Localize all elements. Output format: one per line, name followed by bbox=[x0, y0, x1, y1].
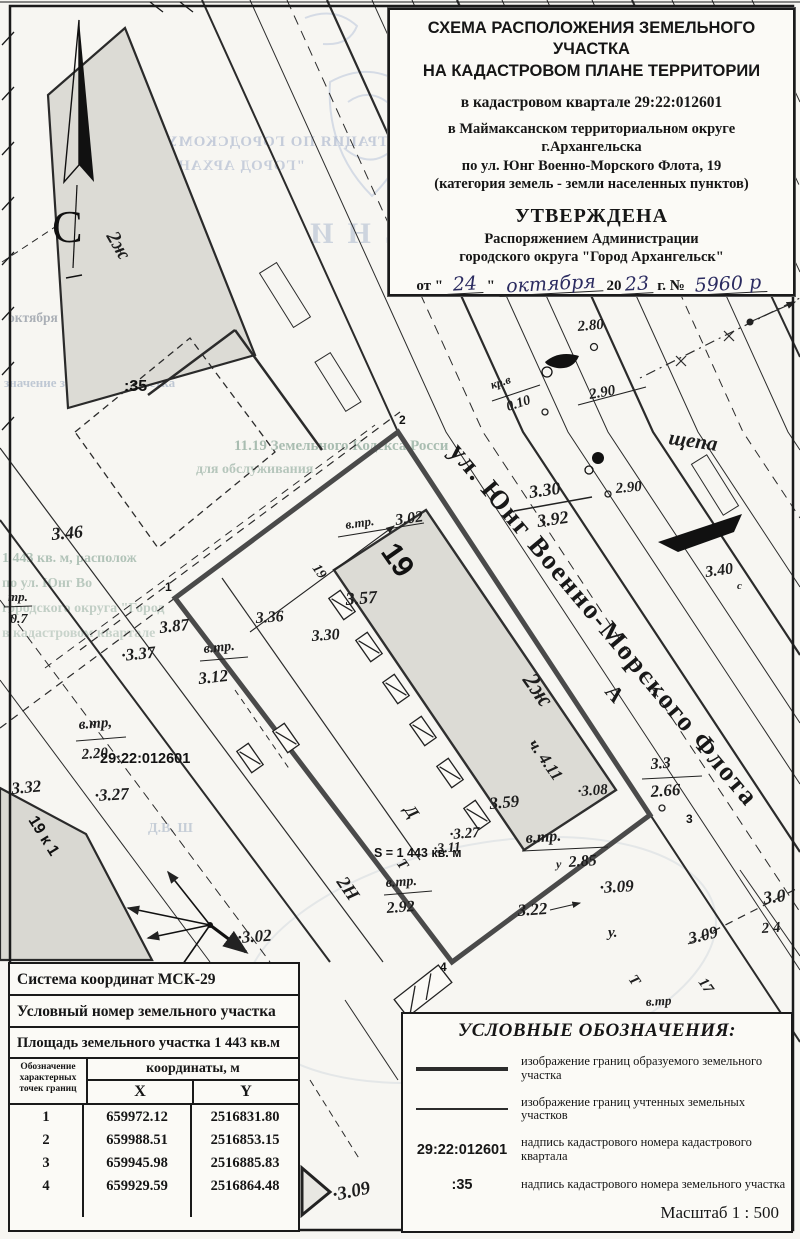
title-block: СХЕМА РАСПОЛОЖЕНИЯ ЗЕМЕЛЬНОГО УЧАСТКА НА… bbox=[388, 8, 795, 296]
map-label: 3.30 bbox=[527, 478, 562, 502]
map-label: в.тр. bbox=[525, 828, 562, 847]
map-label: С bbox=[52, 201, 83, 252]
map-label: 1 bbox=[165, 580, 172, 594]
area-row: Площадь земельного участка 1 443 кв.м bbox=[10, 1028, 298, 1059]
legend-item-formed-parcel: изображение границ образуемого земельног… bbox=[403, 1055, 791, 1083]
handwritten-day: 24 bbox=[446, 275, 483, 295]
map-label: 3.09 bbox=[685, 922, 720, 948]
thick-line-sample bbox=[416, 1067, 508, 1071]
approved-by: Распоряжением Администрации городского о… bbox=[390, 230, 793, 266]
handwritten-year: 23 bbox=[621, 275, 654, 295]
table-header: Обозначение характерных точек границ коо… bbox=[10, 1059, 298, 1105]
map-label: в.тр. bbox=[203, 639, 236, 657]
map-label: у. bbox=[606, 925, 617, 941]
legend-title: УСЛОВНЫЕ ОБОЗНАЧЕНИЯ: bbox=[403, 1020, 791, 1042]
map-label: ·3.27 bbox=[94, 784, 130, 805]
map-label: 2.66 bbox=[649, 780, 681, 801]
map-label: 3.30 bbox=[310, 626, 340, 645]
bleedthrough-text: 1 443 кв. м, располож bbox=[2, 551, 138, 566]
map-label: 3.0 bbox=[761, 885, 787, 908]
map-label: в.тр, bbox=[78, 715, 112, 733]
legend-item-registered-parcels: изображение границ учтенных земельных уч… bbox=[403, 1096, 791, 1124]
map-label: ·3.02 bbox=[237, 926, 273, 947]
map-label: 3.36 bbox=[254, 608, 284, 627]
map-label: 3.92 bbox=[535, 507, 570, 531]
map-label: 2 bbox=[399, 413, 406, 427]
map-label: 3.40 bbox=[703, 560, 734, 581]
handwritten-doc-number: 5960 р bbox=[688, 274, 767, 296]
map-label: Т bbox=[625, 972, 644, 989]
map-label: щепа bbox=[667, 425, 719, 456]
map-label: 19 bbox=[309, 562, 329, 582]
map-label: 3.57 bbox=[344, 587, 379, 609]
bleedthrough-text: для обслуживания bbox=[196, 462, 314, 477]
building-19k1 bbox=[0, 788, 152, 960]
map-label: 4 bbox=[440, 960, 447, 974]
map-label: 3.32 bbox=[10, 776, 43, 798]
thin-line-sample bbox=[416, 1108, 508, 1110]
building-19 bbox=[334, 510, 616, 850]
map-label: ·3.09 bbox=[599, 876, 634, 897]
map-label: 17 bbox=[695, 975, 717, 997]
map-label: в.тр bbox=[645, 993, 672, 1009]
map-label: 2.20 bbox=[80, 745, 109, 763]
y-values: 2516831.802516853.15 2516885.832516864.4… bbox=[192, 1105, 298, 1217]
map-label: с bbox=[737, 580, 742, 592]
map-label: ·3.37 bbox=[120, 642, 157, 665]
map-label: 3.3 bbox=[649, 755, 671, 773]
point-numbers: 12 34 bbox=[10, 1105, 84, 1217]
scheme-title: СХЕМА РАСПОЛОЖЕНИЯ ЗЕМЕЛЬНОГО УЧАСТКА НА… bbox=[390, 18, 793, 82]
map-label: 2 4 bbox=[760, 920, 781, 937]
legend-item-quarter-number: 29:22:012601 надпись кадастрового номера… bbox=[403, 1136, 791, 1164]
map-label: 2.92 bbox=[385, 898, 415, 917]
map-label: 2.80 bbox=[576, 317, 605, 335]
handwritten-month: октября bbox=[498, 273, 603, 297]
conditional-number-row: Условный номер земельного участка bbox=[10, 996, 298, 1028]
map-label: 2.85 bbox=[567, 852, 597, 871]
coordinate-table: Система координат МСК-29 Условный номер … bbox=[8, 962, 300, 1232]
map-label: тр. bbox=[8, 589, 28, 604]
legend-item-parcel-number: :35 надпись кадастрового номера земельно… bbox=[403, 1177, 791, 1193]
map-label: Д bbox=[400, 800, 424, 823]
coord-system-row: Система координат МСК-29 bbox=[10, 964, 298, 996]
map-label: 3.87 bbox=[157, 615, 191, 637]
legend: УСЛОВНЫЕ ОБОЗНАЧЕНИЯ: изображение границ… bbox=[401, 1012, 793, 1233]
map-label: в.тр. bbox=[344, 513, 375, 532]
map-label: :35 bbox=[124, 378, 147, 395]
map-label: ·3.11 bbox=[433, 840, 461, 857]
map-label: А bbox=[600, 679, 631, 709]
table-body: 12 34 659972.12659988.51 659945.98659929… bbox=[10, 1105, 298, 1217]
map-label: 2.90 bbox=[587, 383, 617, 404]
scanned-cadastral-scheme-page: ТРАЦИЯ ПО ГОРОДСКОМУ ОКРУГУ"ГОРОД АРХАНГ… bbox=[0, 0, 800, 1239]
map-label: 0.7 bbox=[10, 612, 29, 627]
bleedthrough-text: в кадастровом квартале bbox=[2, 626, 155, 641]
approved-heading: УТВЕРЖДЕНА bbox=[390, 205, 793, 228]
map-label: 3.46 bbox=[50, 521, 84, 544]
map-scale: Масштаб 1 : 500 bbox=[660, 1203, 779, 1223]
chevron-mark bbox=[302, 1168, 330, 1215]
map-label: 0.10 bbox=[505, 393, 533, 415]
map-label: ·3.09 bbox=[331, 1177, 373, 1206]
map-label: 2Н bbox=[331, 872, 363, 906]
location-address: в Маймаксанском территориальном округе г… bbox=[390, 120, 793, 193]
approval-date-line: от " 24 " октября 2023 г. № 5960 р bbox=[390, 276, 793, 295]
x-column-header: X bbox=[88, 1081, 194, 1103]
map-label: 29:22:012601 bbox=[100, 751, 190, 767]
coords-header: координаты, м bbox=[88, 1059, 298, 1081]
map-label: у bbox=[554, 857, 562, 871]
map-label: в.тр. bbox=[385, 874, 417, 891]
cadastral-quarter: в кадастровом квартале 29:22:012601 bbox=[390, 94, 793, 112]
map-label: 2.90 bbox=[614, 479, 643, 497]
points-header: Обозначение характерных точек границ bbox=[10, 1059, 88, 1103]
y-column-header: Y bbox=[194, 1081, 298, 1103]
x-values: 659972.12659988.51 659945.98659929.59 bbox=[84, 1105, 192, 1217]
map-label: 3 bbox=[686, 812, 693, 826]
map-label: 3.59 bbox=[488, 791, 521, 813]
map-label: 3.12 bbox=[196, 666, 229, 688]
survey-point bbox=[747, 319, 754, 326]
map-label: ·3.08 bbox=[577, 782, 609, 800]
map-label: кр.в bbox=[489, 372, 513, 392]
map-label: 3.22 bbox=[516, 899, 548, 920]
